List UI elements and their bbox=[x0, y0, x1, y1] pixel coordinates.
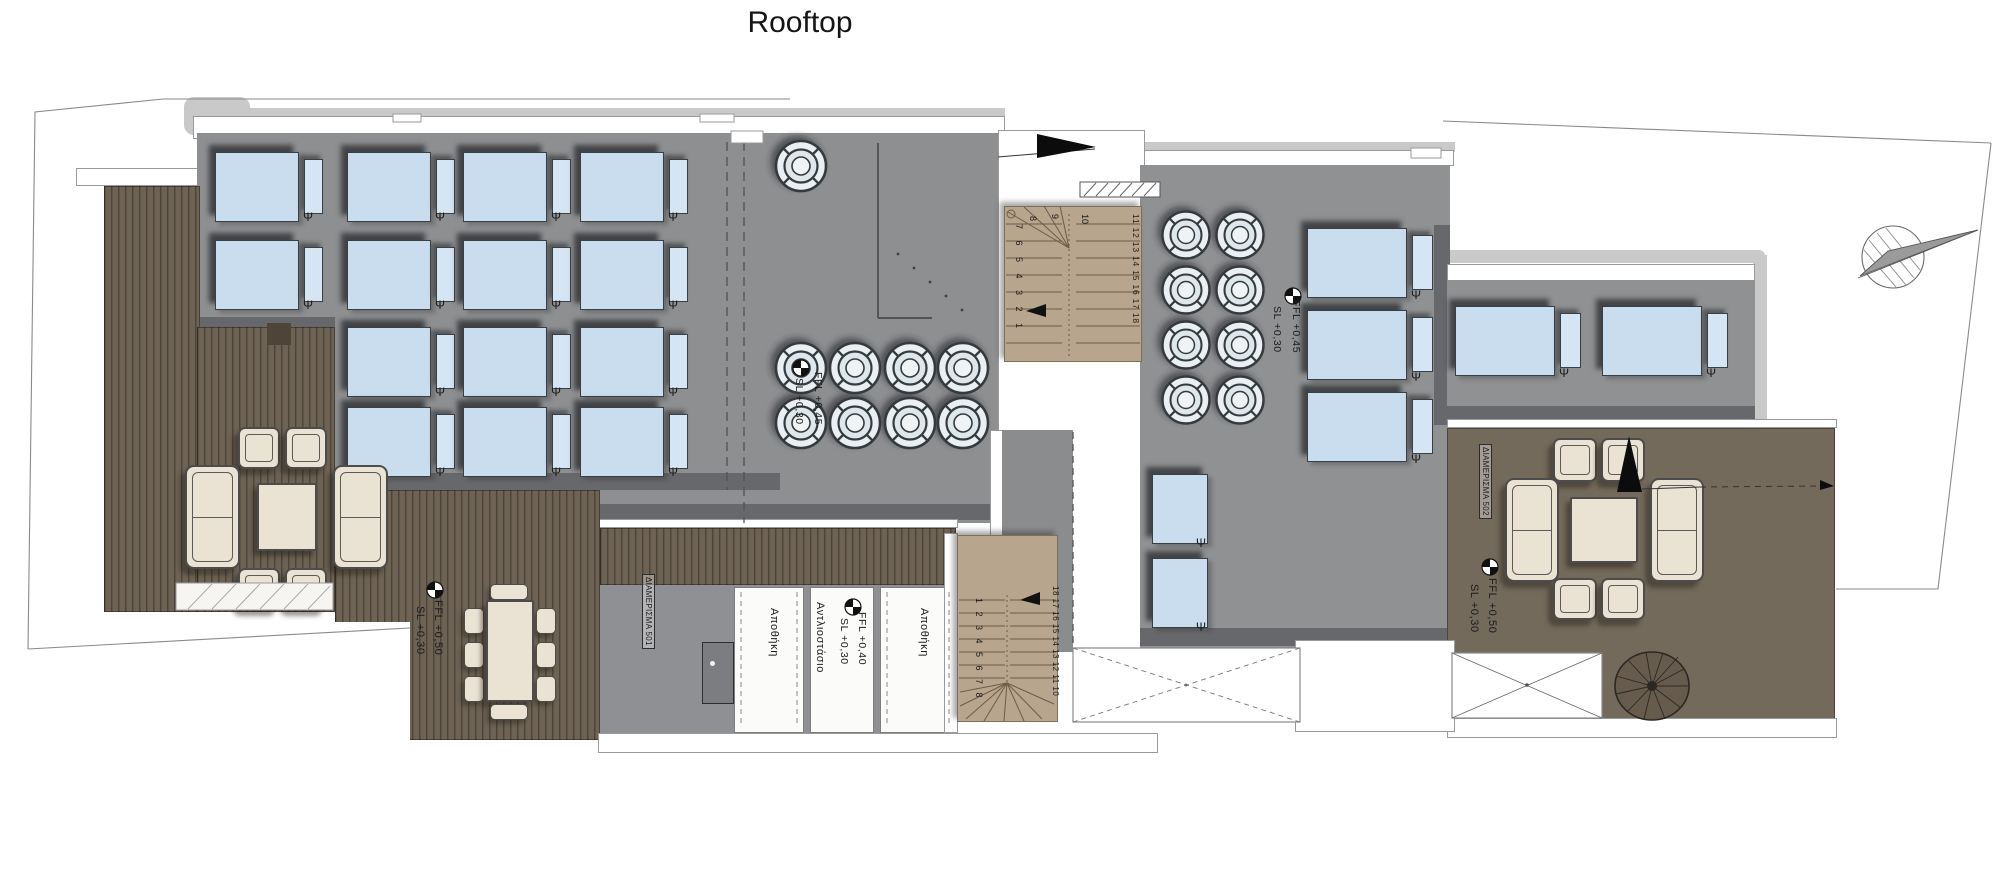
solar-panel-unit: Ψ bbox=[215, 240, 325, 312]
dining-chair bbox=[464, 642, 484, 668]
solar-panel bbox=[463, 407, 547, 477]
wall-band bbox=[598, 733, 1158, 753]
solar-collector bbox=[552, 159, 571, 214]
panel-psi-symbol: Ψ bbox=[303, 210, 313, 224]
sofa bbox=[185, 465, 240, 569]
dining-chair bbox=[490, 584, 528, 600]
armchair bbox=[285, 427, 327, 469]
sofa bbox=[333, 465, 388, 569]
solar-collector bbox=[304, 247, 323, 302]
solar-panel bbox=[1307, 228, 1407, 298]
panel-psi-symbol: Ψ bbox=[1559, 366, 1569, 380]
solar-panel bbox=[1152, 558, 1208, 628]
solar-panel-unit: Ψ bbox=[347, 240, 457, 312]
coffee-table bbox=[257, 483, 317, 551]
solar-panel bbox=[1307, 392, 1407, 462]
solar-panel-unit: Ψ bbox=[463, 152, 573, 224]
solar-panel-unit: Ψ bbox=[215, 152, 325, 224]
panel-psi-symbol: Ψ bbox=[668, 465, 678, 479]
room-label: Αποθήκη bbox=[918, 608, 930, 657]
solar-panel-unit: Ψ bbox=[347, 152, 457, 224]
panel-psi-symbol: Ψ bbox=[668, 210, 678, 224]
solar-panel-unit: Ψ bbox=[1307, 310, 1435, 382]
sofa bbox=[1650, 478, 1704, 582]
solar-panel bbox=[1307, 310, 1407, 380]
solar-panel bbox=[215, 240, 299, 310]
sofa bbox=[1505, 478, 1559, 582]
roof-edge bbox=[1753, 255, 1767, 423]
armchair bbox=[238, 568, 280, 610]
dining-chair bbox=[490, 704, 528, 720]
dining-chair bbox=[464, 676, 484, 702]
solar-panel-unit: Ψ bbox=[347, 327, 457, 399]
panel-psi-symbol: Ψ bbox=[551, 385, 561, 399]
solar-collector bbox=[552, 247, 571, 302]
panel-psi-symbol: Ψ bbox=[435, 465, 445, 479]
solar-collector bbox=[669, 414, 688, 469]
level-label: SL +0,30 bbox=[1271, 306, 1283, 353]
apartment-label: ΔΙΑΜΕΡΙΣΜΑ 501 bbox=[642, 574, 655, 649]
solar-panel bbox=[347, 327, 431, 397]
wall-band bbox=[1447, 419, 1837, 428]
panel-psi-symbol: Ψ bbox=[1706, 366, 1716, 380]
solar-panel bbox=[463, 240, 547, 310]
panel-psi-symbol: Ψ bbox=[668, 298, 678, 312]
solar-panel-unit: Ψ bbox=[1152, 558, 1210, 632]
solar-collector bbox=[669, 334, 688, 389]
right-top-wall bbox=[1140, 150, 1454, 166]
compass-icon bbox=[1858, 226, 1978, 288]
panel-psi-symbol: Ψ bbox=[551, 210, 561, 224]
solar-collector bbox=[436, 159, 455, 214]
floor-plan: Rooftop Ψ Ψ Ψ Ψ Ψ Ψ Ψ Ψ Ψ bbox=[0, 0, 1994, 872]
lower-staircase bbox=[957, 535, 1058, 722]
solar-collector bbox=[1412, 317, 1433, 372]
wall-band bbox=[944, 533, 958, 733]
solar-panel bbox=[1152, 474, 1208, 544]
level-label: SL +0,30 bbox=[414, 606, 426, 655]
solar-panel-unit: Ψ bbox=[1152, 474, 1210, 548]
armchair bbox=[285, 568, 327, 610]
solar-panel bbox=[580, 407, 664, 477]
solar-panel bbox=[580, 240, 664, 310]
solar-panel bbox=[347, 240, 431, 310]
solar-collector bbox=[436, 334, 455, 389]
solar-panel-unit: Ψ bbox=[1307, 392, 1435, 464]
page-title: Rooftop bbox=[700, 6, 900, 40]
light-court bbox=[1073, 430, 1140, 652]
solar-panel-unit: Ψ bbox=[580, 407, 690, 479]
wall-band bbox=[596, 519, 958, 528]
roof-shadow-band bbox=[600, 504, 1003, 520]
wall-band bbox=[1447, 718, 1837, 738]
roof-shadow-band bbox=[1447, 406, 1755, 420]
solar-collector bbox=[669, 247, 688, 302]
solar-panel bbox=[463, 327, 547, 397]
solar-panel-unit: Ψ bbox=[1602, 306, 1730, 378]
solar-panel-unit: Ψ bbox=[463, 240, 573, 312]
panel-psi-symbol: Ψ bbox=[1411, 452, 1421, 466]
solar-panel bbox=[215, 152, 299, 222]
level-label: SL +0,30 bbox=[793, 378, 805, 425]
wall-band bbox=[1447, 264, 1755, 281]
deck-step bbox=[267, 323, 291, 345]
panel-psi-symbol: Ψ bbox=[1411, 370, 1421, 384]
solar-panel bbox=[1602, 306, 1702, 376]
panel-psi-symbol: Ψ bbox=[435, 210, 445, 224]
armchair bbox=[1601, 578, 1645, 620]
apartment-label: ΔΙΑΜΕΡΙΣΜΑ 502 bbox=[1479, 444, 1492, 519]
solar-collector bbox=[552, 414, 571, 469]
dining-chair bbox=[464, 608, 484, 634]
solar-collector bbox=[552, 334, 571, 389]
armchair bbox=[1553, 578, 1597, 620]
solar-collector bbox=[1412, 399, 1433, 454]
level-label: FFL +0,50 bbox=[1486, 578, 1498, 633]
solar-collector bbox=[1412, 235, 1433, 290]
solar-panel-unit: Ψ bbox=[580, 240, 690, 312]
solar-panel-unit: Ψ bbox=[580, 152, 690, 224]
level-label: FFL +0,50 bbox=[432, 600, 444, 655]
solar-panel-unit: Ψ bbox=[580, 327, 690, 399]
solar-panel bbox=[1455, 306, 1555, 376]
solar-collector bbox=[436, 247, 455, 302]
corridor bbox=[1295, 640, 1455, 732]
solar-collector bbox=[436, 414, 455, 469]
solar-panel-unit: Ψ bbox=[463, 407, 573, 479]
level-label: FFL +0,45 bbox=[1290, 300, 1302, 353]
solar-panel-unit: Ψ bbox=[1307, 228, 1435, 300]
solar-panel bbox=[347, 152, 431, 222]
panel-psi-symbol: Ψ bbox=[435, 298, 445, 312]
dining-chair bbox=[536, 608, 556, 634]
room-label: Αντλιοστάσιο bbox=[814, 602, 826, 673]
solar-panel-unit: Ψ bbox=[1455, 306, 1583, 378]
panel-psi-symbol: Ψ bbox=[1196, 620, 1206, 634]
panel-psi-symbol: Ψ bbox=[551, 465, 561, 479]
door bbox=[702, 642, 734, 704]
solar-panel-unit: Ψ bbox=[463, 327, 573, 399]
panel-psi-symbol: Ψ bbox=[668, 385, 678, 399]
solar-panel bbox=[580, 327, 664, 397]
level-label: SL +0,30 bbox=[1468, 584, 1480, 633]
panel-psi-symbol: Ψ bbox=[1411, 288, 1421, 302]
dining-chair bbox=[536, 676, 556, 702]
upper-staircase bbox=[1004, 206, 1142, 362]
solar-panel bbox=[580, 152, 664, 222]
dining-table bbox=[486, 600, 534, 702]
solar-collector bbox=[1707, 313, 1728, 368]
armchair bbox=[238, 427, 280, 469]
coffee-table bbox=[1570, 497, 1638, 563]
roof-edge bbox=[1443, 250, 1765, 263]
solar-panel bbox=[463, 152, 547, 222]
panel-psi-symbol: Ψ bbox=[303, 298, 313, 312]
level-label: FFL +0,45 bbox=[812, 372, 824, 425]
panel-psi-symbol: Ψ bbox=[435, 385, 445, 399]
armchair bbox=[1601, 438, 1645, 482]
dining-chair bbox=[536, 642, 556, 668]
deck-top-wall bbox=[76, 168, 208, 186]
level-label: FFL +0,40 bbox=[856, 612, 868, 665]
solar-collector bbox=[304, 159, 323, 214]
room-label: Αποθήκη bbox=[768, 608, 780, 657]
level-label: SL +0,30 bbox=[838, 618, 850, 665]
solar-collector bbox=[1560, 313, 1581, 368]
panel-psi-symbol: Ψ bbox=[551, 298, 561, 312]
panel-psi-symbol: Ψ bbox=[1196, 536, 1206, 550]
armchair bbox=[1553, 438, 1597, 482]
solar-collector bbox=[669, 159, 688, 214]
